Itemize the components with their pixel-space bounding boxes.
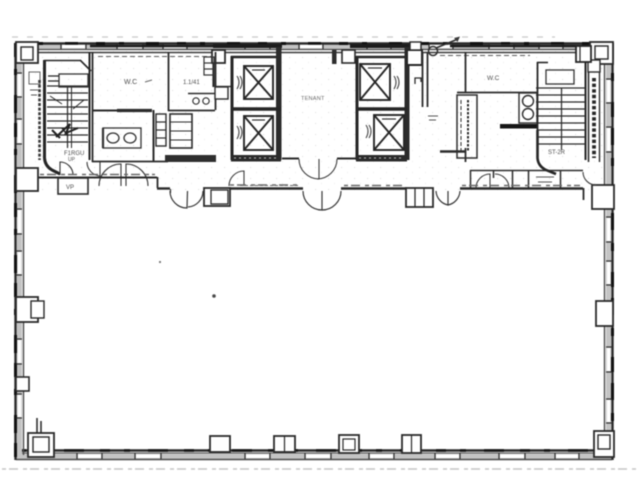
svg-text:1.1/41: 1.1/41 [183, 80, 200, 86]
svg-text:W.C: W.C [124, 79, 137, 86]
svg-text:VP: VP [66, 185, 74, 191]
svg-text:W.C: W.C [487, 75, 500, 82]
svg-text:ST-2R: ST-2R [548, 150, 566, 156]
svg-text:UP: UP [68, 157, 76, 163]
svg-text:TENANT: TENANT [301, 96, 325, 102]
